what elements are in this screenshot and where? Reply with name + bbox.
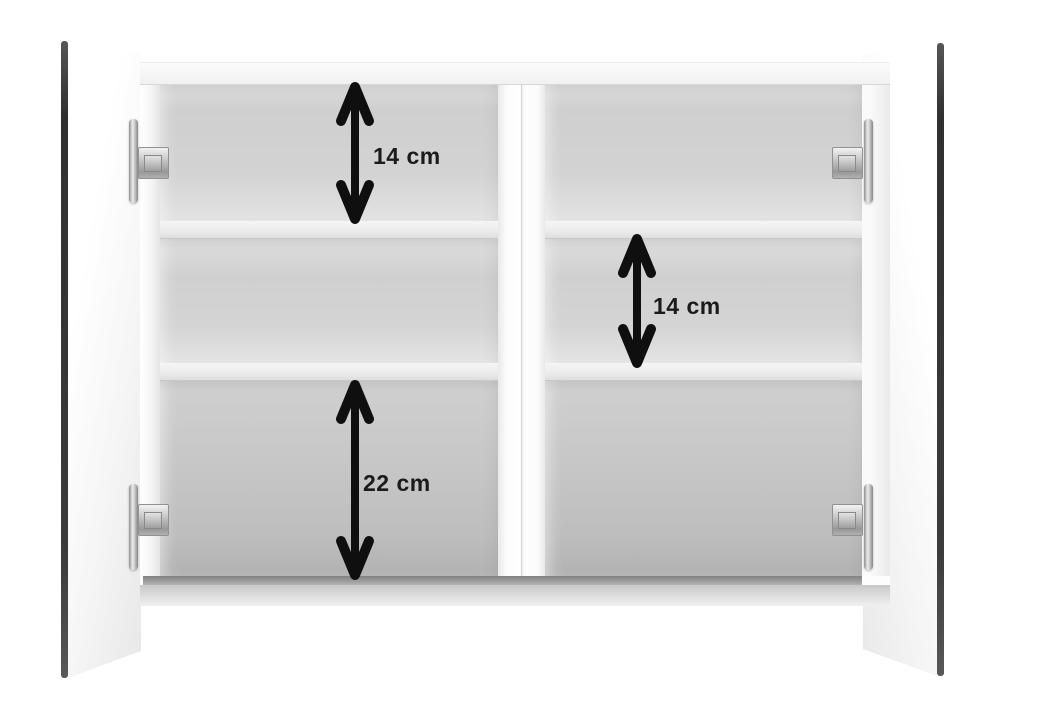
hinge-cup-inner: [838, 155, 856, 172]
left-upper-shelf: [160, 221, 498, 239]
left-middle-compartment: [160, 239, 498, 363]
center-door-seam: [521, 85, 522, 576]
hinge-arm: [864, 484, 873, 570]
hinge-arm: [864, 119, 873, 203]
left-lower-shelf: [160, 363, 498, 381]
hinge-top-right: [831, 119, 875, 203]
left-upper-compartment: [160, 85, 498, 221]
hinge-cup-inner: [144, 155, 162, 172]
dimension-label-middle: 14 cm: [653, 293, 721, 320]
right-upper-shelf: [545, 221, 862, 239]
hinge-cup: [832, 147, 863, 179]
hinge-top-left: [129, 119, 173, 203]
left-compartment-column: [160, 85, 498, 576]
cabinet-bottom-panel: [140, 585, 890, 606]
right-upper-compartment: [545, 85, 862, 221]
hinge-cup-inner: [838, 512, 856, 529]
hinge-cup: [138, 147, 169, 179]
right-lower-compartment: [545, 381, 862, 576]
hinge-cup: [832, 504, 863, 536]
right-compartment-column: [545, 85, 862, 576]
cabinet-body: [140, 62, 890, 605]
product-dimension-image: 14 cm 14 cm 22 cm: [0, 0, 1053, 724]
right-lower-shelf: [545, 363, 862, 381]
hinge-arm: [129, 119, 138, 203]
cabinet-bottom-shadow-strip: [143, 576, 862, 585]
cabinet-top-rail: [140, 63, 890, 85]
cabinet-center-stile: [498, 85, 545, 576]
hinge-cup: [138, 504, 169, 536]
hinge-bottom-left: [129, 484, 173, 570]
hinge-bottom-right: [831, 484, 875, 570]
dimension-label-lower: 22 cm: [363, 470, 431, 497]
hinge-arm: [129, 484, 138, 570]
left-door-dark-edge: [61, 41, 68, 678]
right-door-dark-edge: [937, 43, 944, 676]
hinge-cup-inner: [144, 512, 162, 529]
dimension-label-upper: 14 cm: [373, 143, 441, 170]
left-lower-compartment: [160, 381, 498, 576]
